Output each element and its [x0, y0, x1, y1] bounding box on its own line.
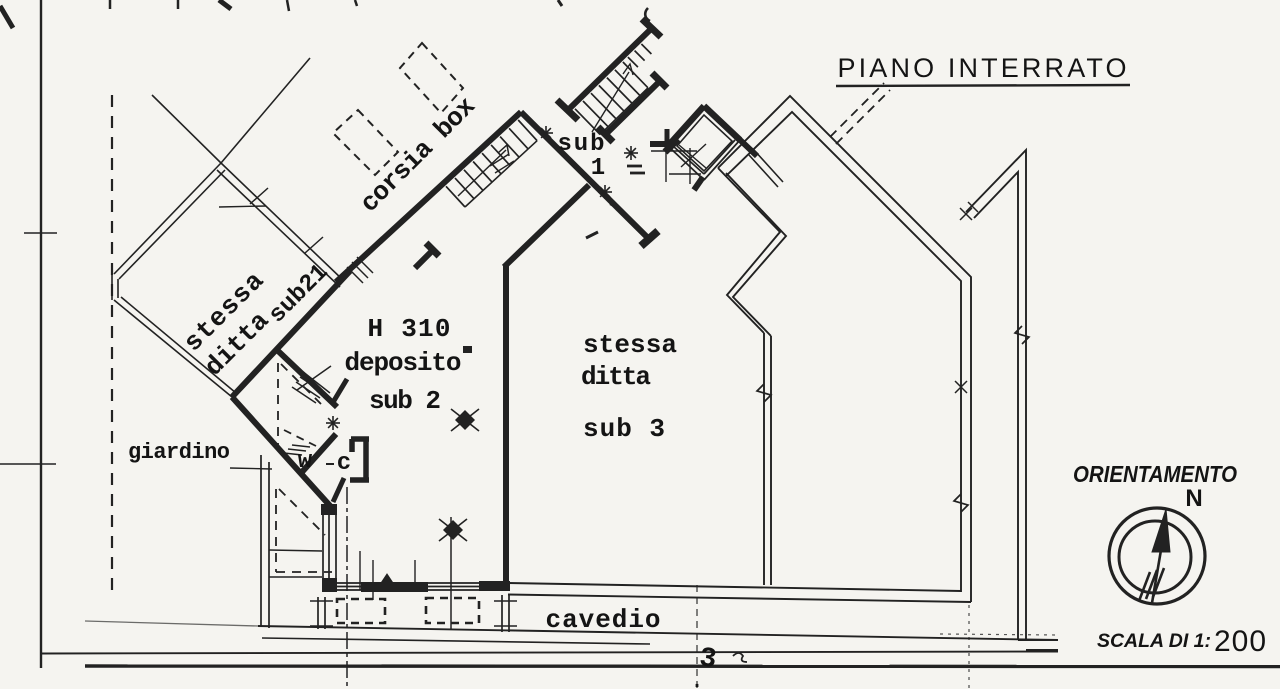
svg-text:SCALA DI 1:: SCALA DI 1: [1097, 631, 1211, 652]
svg-text:.: . [691, 671, 703, 689]
svg-text:200: 200 [1214, 625, 1266, 658]
svg-text:w: w [298, 448, 313, 475]
svg-text:deposito: deposito [345, 348, 462, 378]
svg-text:sub: sub [558, 131, 605, 158]
svg-text:sub 3: sub 3 [583, 414, 665, 444]
svg-text:giardino: giardino [128, 440, 230, 465]
svg-text:cavedio: cavedio [546, 605, 661, 635]
svg-text:H 310: H 310 [368, 314, 451, 344]
svg-text:sub 2: sub 2 [369, 386, 441, 416]
svg-text:PIANO INTERRATO: PIANO INTERRATO [838, 53, 1127, 83]
svg-text:stessa: stessa [583, 330, 677, 360]
svg-text:1: 1 [591, 155, 605, 182]
svg-text:N: N [1185, 485, 1202, 512]
svg-text:c: c [337, 450, 351, 477]
svg-text:ORIENTAMENTO: ORIENTAMENTO [1073, 461, 1237, 487]
svg-text:ditta: ditta [581, 362, 651, 392]
